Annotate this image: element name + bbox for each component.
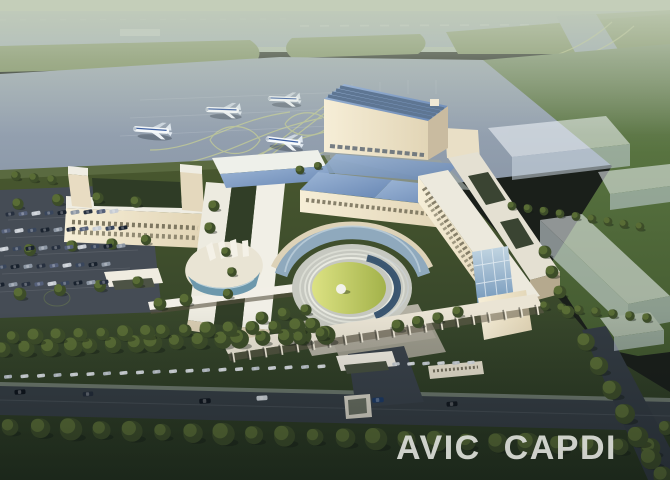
watermark-text: AVIC CAPDI	[396, 429, 617, 467]
rendering-canvas: AVIC CAPDI	[0, 0, 670, 480]
architectural-rendering: AVIC CAPDI	[0, 0, 670, 480]
courtyard-lawn	[312, 262, 386, 314]
courtyard-dome	[336, 284, 346, 294]
